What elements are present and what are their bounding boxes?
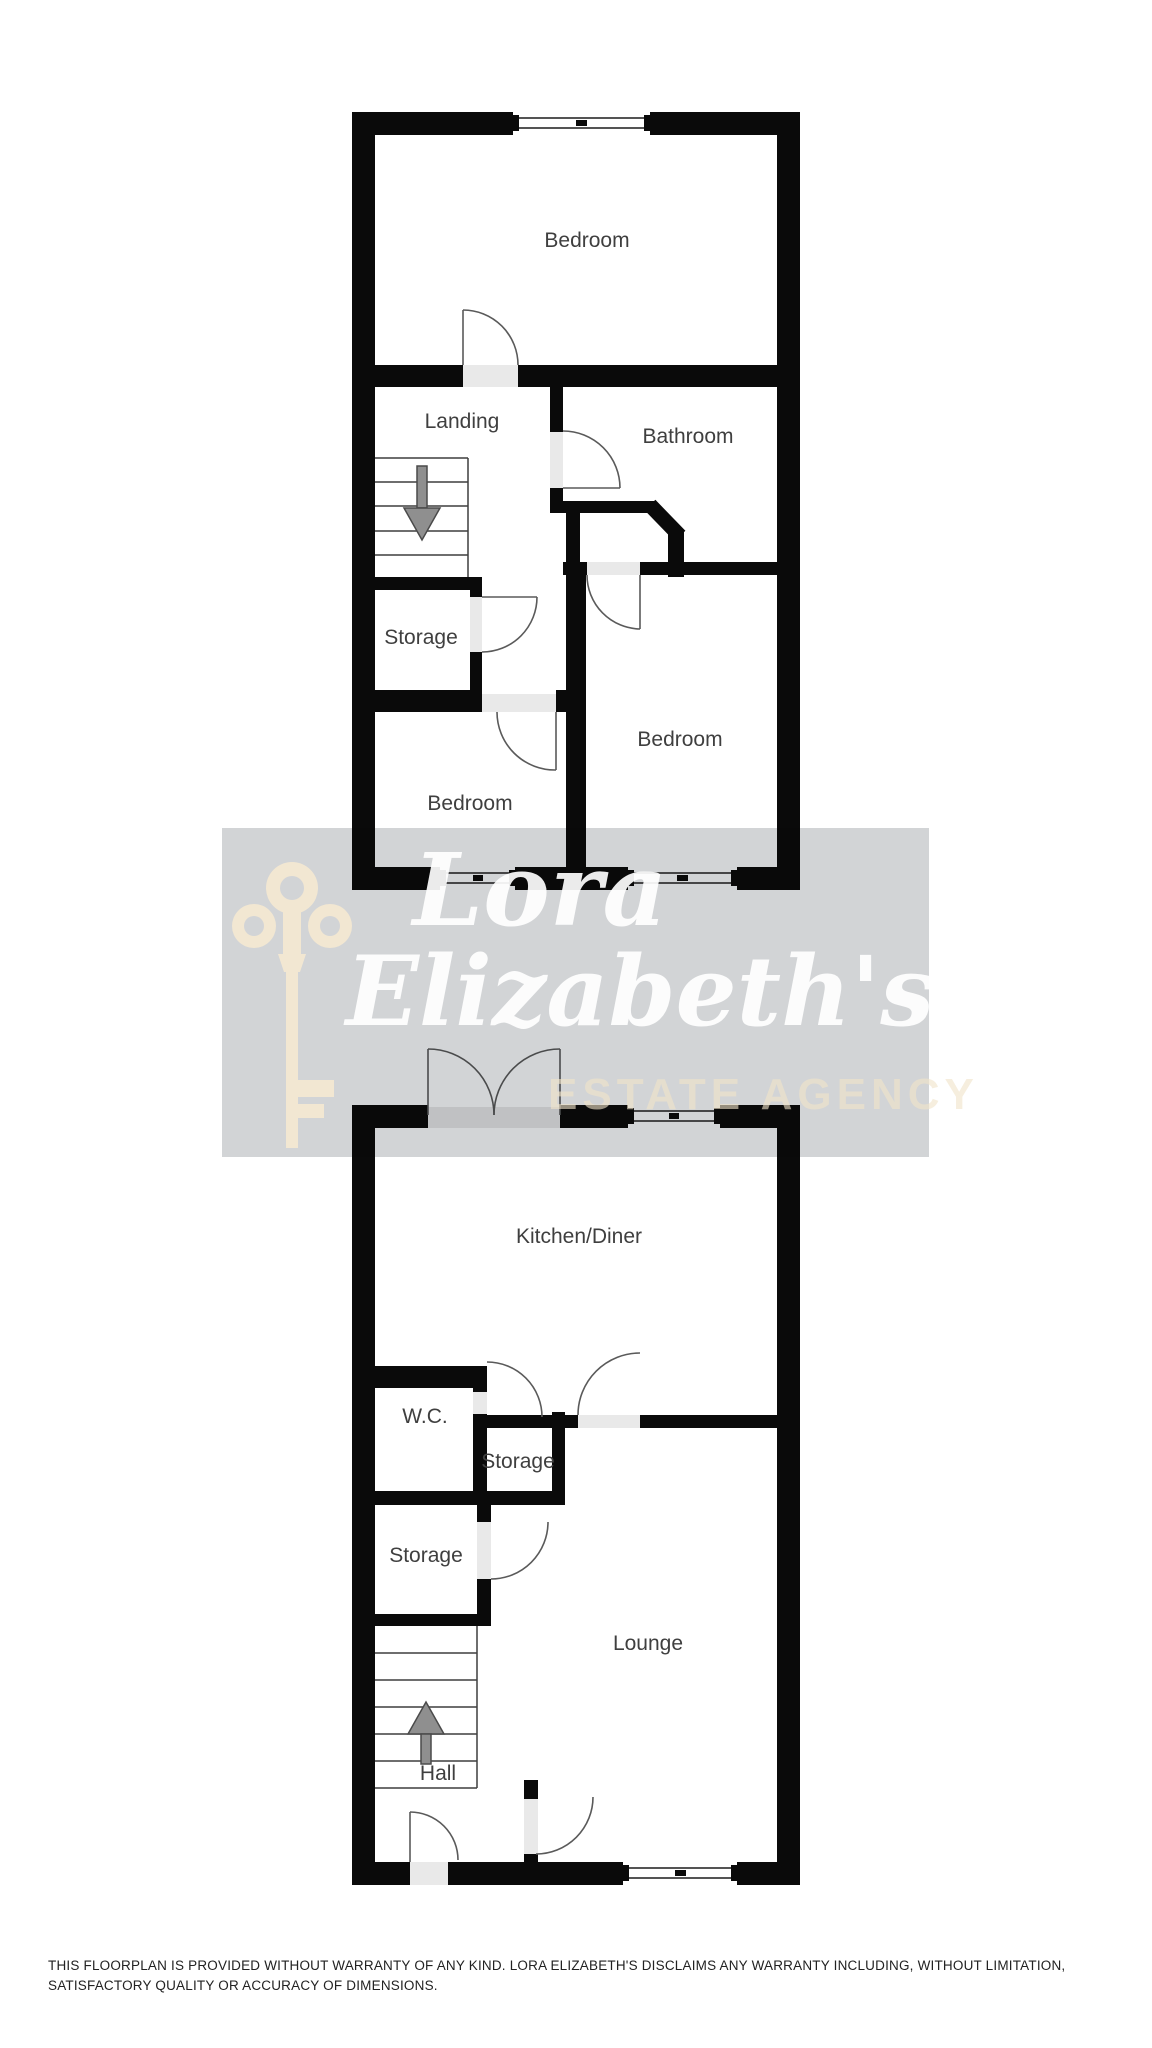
stairs-down-arrow-icon [404, 466, 440, 540]
disclaimer-text: THIS FLOORPLAN IS PROVIDED WITHOUT WARRA… [48, 1956, 1108, 1996]
room-label-storage-ground: Storage [389, 1544, 463, 1567]
wall [352, 690, 482, 712]
door-arc [482, 597, 537, 652]
room-label-bedroom-left: Bedroom [427, 792, 512, 815]
door-threshold [470, 597, 482, 652]
door-arc [463, 310, 518, 365]
door-threshold [550, 432, 563, 488]
door-threshold [410, 1862, 448, 1885]
window [513, 112, 650, 135]
wall [352, 1862, 410, 1885]
first-floor-plan: Bedroom Landing Bathroom Storage Bedroom… [352, 112, 800, 890]
windows [623, 1105, 737, 1885]
wall [352, 1366, 487, 1388]
room-label-bedroom-right: Bedroom [637, 728, 722, 751]
wall [375, 365, 463, 387]
wall [470, 577, 482, 597]
room-label-landing: Landing [425, 410, 500, 433]
room-label-storage-first: Storage [384, 626, 458, 649]
room-label-bathroom: Bathroom [642, 425, 733, 448]
door-arc [491, 1522, 548, 1579]
door-arc [487, 1362, 542, 1417]
room-label-bedroom-top: Bedroom [544, 229, 629, 252]
door-threshold [477, 1522, 491, 1579]
wall [352, 112, 375, 890]
stairs [375, 458, 468, 577]
wall [518, 365, 777, 387]
wall [352, 1614, 477, 1626]
door-threshold [463, 365, 518, 387]
wall [563, 501, 655, 513]
wall [565, 1415, 578, 1428]
wall [477, 1505, 491, 1522]
door-threshold [482, 694, 556, 712]
door-arc [587, 575, 640, 629]
disclaimer-line-1: THIS FLOORPLAN IS PROVIDED WITHOUT WARRA… [48, 1956, 1108, 1976]
wall [556, 690, 566, 712]
room-label-storage-small: Storage [481, 1450, 555, 1473]
wall [352, 1491, 565, 1505]
ground-floor-plan: Kitchen/Diner W.C. Storage Storage Loung… [352, 1049, 800, 1885]
door-arc [578, 1353, 640, 1415]
wall [477, 1579, 491, 1626]
wall [566, 513, 580, 575]
door-arc [563, 431, 620, 488]
wall [550, 387, 563, 432]
wall [640, 1415, 777, 1428]
door-threshold [587, 562, 640, 575]
room-labels: Bedroom Landing Bathroom Storage Bedroom… [384, 229, 733, 815]
room-label-lounge: Lounge [613, 1632, 683, 1655]
floorplan-page: Bedroom Landing Bathroom Storage Bedroom… [0, 0, 1152, 2048]
door-threshold [578, 1415, 640, 1428]
wall [737, 1862, 800, 1885]
wall [524, 1854, 538, 1885]
wall [352, 112, 513, 135]
room-label-wc: W.C. [402, 1405, 448, 1428]
door-arc [497, 712, 556, 770]
front-door-arc [410, 1812, 458, 1860]
stairs-up-arrow-icon [408, 1702, 444, 1764]
wall [777, 1105, 800, 1885]
wall [550, 488, 563, 513]
room-label-kitchen-diner: Kitchen/Diner [516, 1225, 642, 1248]
watermark-band [222, 828, 929, 1157]
window [623, 1862, 737, 1885]
room-label-hall: Hall [420, 1762, 456, 1785]
door-threshold [524, 1799, 538, 1854]
wall [375, 577, 482, 590]
wall [640, 562, 777, 575]
door-threshold [473, 1392, 487, 1414]
door-arc [536, 1797, 593, 1854]
wall [473, 1366, 487, 1392]
disclaimer-line-2: SATISFACTORY QUALITY OR ACCURACY OF DIME… [48, 1976, 1108, 1996]
wall [566, 575, 586, 867]
wall [777, 112, 800, 890]
wall [524, 1780, 538, 1799]
